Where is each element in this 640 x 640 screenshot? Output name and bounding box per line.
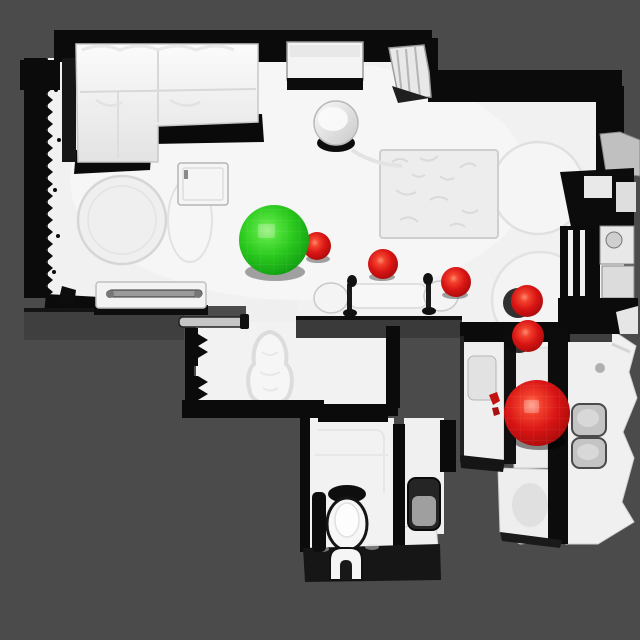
wall-topleft-block — [20, 60, 60, 90]
dining-table — [348, 284, 428, 308]
green-sphere-highlight — [258, 224, 275, 238]
scene-viewport[interactable] — [0, 0, 640, 640]
console-table — [287, 42, 363, 90]
round-rug — [78, 176, 166, 264]
sink-basin-1 — [572, 404, 606, 436]
wall-bathroom-left — [300, 418, 310, 552]
sink-basin-2 — [572, 438, 606, 468]
wall-bathroom-divider — [393, 424, 405, 560]
wall-top-right — [428, 70, 622, 102]
wall-top-jog — [428, 38, 438, 74]
wall-hallway-right — [386, 326, 400, 408]
figure-rug — [248, 332, 292, 404]
red-sphere-5 — [512, 320, 544, 352]
wall-bathroom-right — [440, 420, 456, 472]
textured-rug — [380, 150, 498, 238]
fixture-inset — [468, 356, 496, 400]
toilet — [312, 485, 367, 552]
wall-hallway-bottom — [182, 400, 324, 418]
toilet-base — [330, 548, 362, 580]
bathtub — [408, 478, 440, 530]
sink-room-dot — [595, 363, 605, 373]
wall-bathroom-top — [318, 408, 388, 422]
wall-chair-strip — [296, 320, 462, 338]
green-sphere-facets — [239, 205, 309, 275]
end-table — [178, 163, 228, 205]
red-sphere-2 — [368, 249, 398, 279]
hallway-rod — [179, 314, 249, 329]
red-sphere-6-highlight — [524, 400, 539, 413]
red-sphere-4 — [511, 285, 543, 317]
curtain — [389, 45, 431, 103]
red-sphere-3 — [441, 267, 471, 297]
